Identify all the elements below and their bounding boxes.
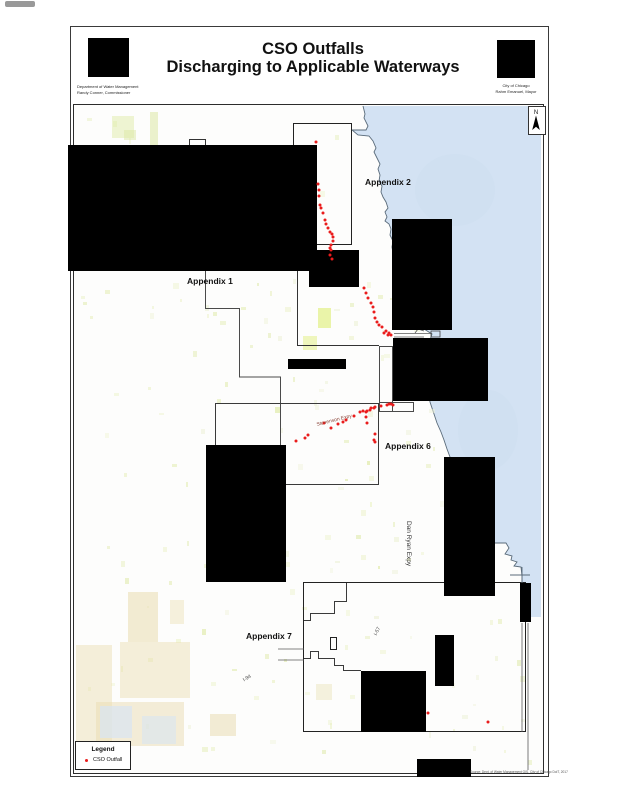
svg-text:N: N [534,110,538,116]
